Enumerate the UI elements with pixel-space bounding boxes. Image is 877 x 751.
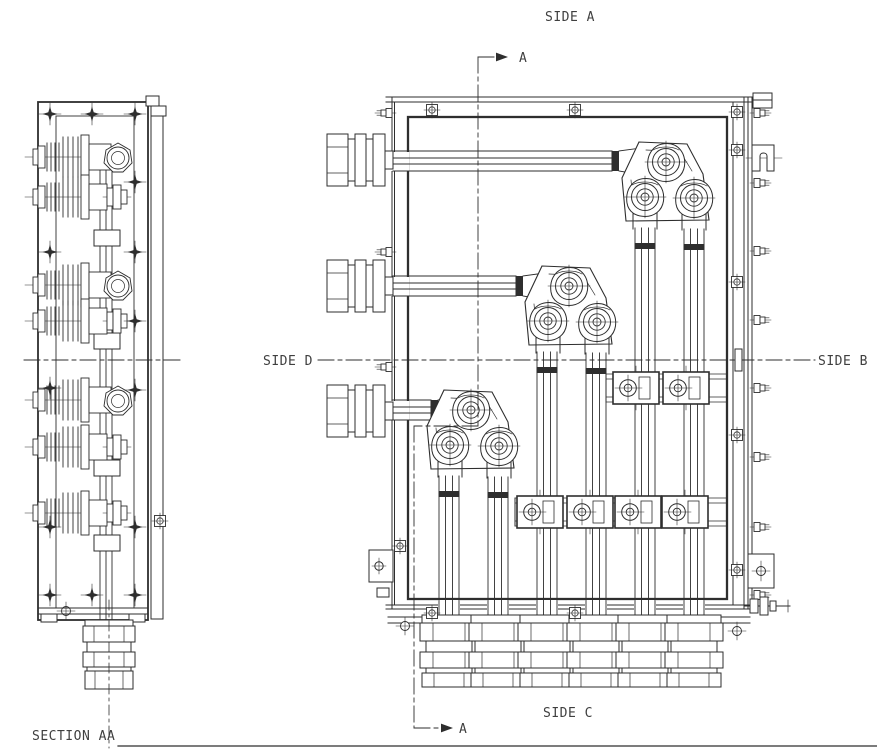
label-side-a: SIDE A <box>545 10 595 25</box>
side-cable-gland <box>327 385 393 437</box>
phase-lug-cluster-middle <box>525 265 618 354</box>
plate-bolt <box>396 617 414 635</box>
panel-tab <box>151 106 166 116</box>
label-cut-a-top: A <box>519 51 527 66</box>
phase-lug-cluster-bottom <box>427 389 520 478</box>
plate-bolt <box>728 622 746 640</box>
panel-tab <box>146 96 159 106</box>
terminal-block <box>567 490 613 534</box>
terminal-block <box>517 490 563 534</box>
main-view <box>327 93 790 687</box>
horizontal-busbar-top <box>393 147 648 176</box>
ground-stud <box>745 597 790 615</box>
section-aa-view <box>25 96 168 748</box>
terminal-block <box>615 490 661 534</box>
cut-arrow-bottom-icon <box>441 724 453 733</box>
engineering-drawing-sheet: SIDE A SIDE D SIDE B SIDE C SECTION AA A… <box>0 0 877 751</box>
bottom-cable-gland <box>665 615 723 687</box>
side-cable-gland <box>327 260 393 312</box>
panel-screw <box>152 513 168 529</box>
hinge-pin <box>735 349 742 371</box>
label-side-d: SIDE D <box>263 354 313 369</box>
mounting-bracket-left <box>369 550 393 597</box>
label-side-c: SIDE C <box>543 706 593 721</box>
terminal-box-drawing: SIDE A SIDE D SIDE B SIDE C SECTION AA A… <box>0 0 877 751</box>
section-enclosure-outline <box>38 102 148 620</box>
phase-lug-cluster-top <box>622 141 715 230</box>
corner-tab-bracket <box>753 93 772 108</box>
section-cover-panel <box>151 113 163 619</box>
label-side-b: SIDE B <box>818 354 868 369</box>
foot <box>41 614 57 622</box>
label-section-aa: SECTION AA <box>32 729 115 744</box>
mounting-bracket-right <box>748 554 774 588</box>
terminal-block <box>663 366 709 410</box>
terminal-block <box>662 490 708 534</box>
side-cable-gland <box>327 134 393 186</box>
hinge-clip-bracket <box>746 145 782 171</box>
label-cut-a-bottom: A <box>459 722 467 737</box>
terminal-block <box>613 366 659 410</box>
cut-arrow-top-icon <box>496 53 508 62</box>
